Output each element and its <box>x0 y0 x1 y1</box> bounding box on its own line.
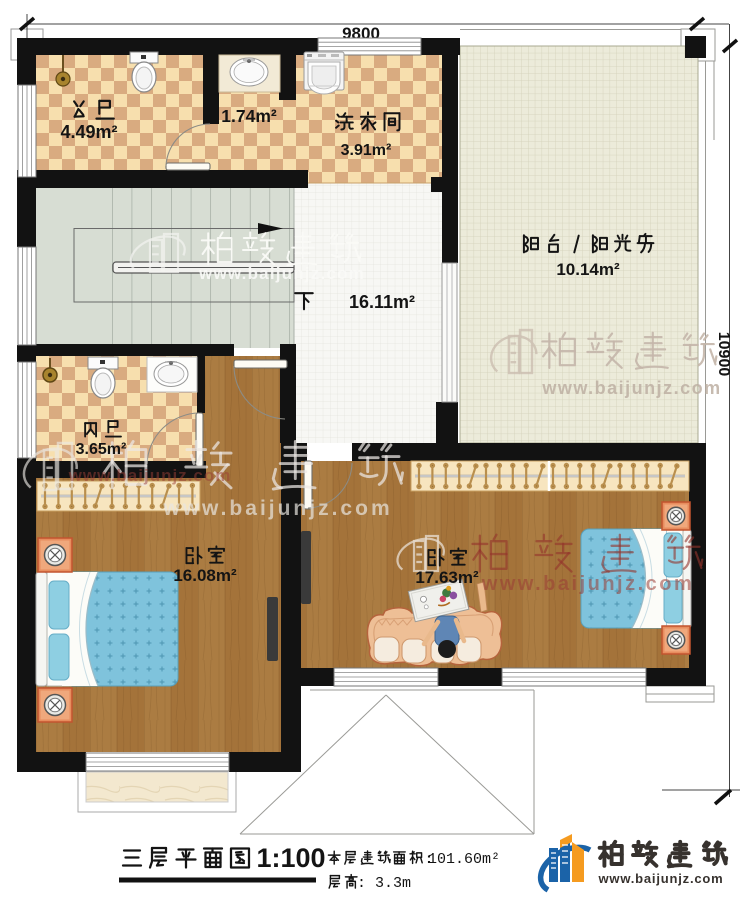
svg-text:16.11m²: 16.11m² <box>349 292 415 312</box>
svg-text:www.baijunjz.com: www.baijunjz.com <box>68 466 232 485</box>
svg-text:17.63m²: 17.63m² <box>415 568 479 587</box>
svg-text:www.baijunjz.com: www.baijunjz.com <box>481 573 695 595</box>
svg-text:1.74m²: 1.74m² <box>221 106 277 126</box>
svg-text:3.91m²: 3.91m² <box>341 142 392 159</box>
svg-text:16.08m²: 16.08m² <box>173 566 237 585</box>
svg-text:: 3.3m: : 3.3m <box>357 875 411 892</box>
svg-text:www.baijunjz.com: www.baijunjz.com <box>162 497 392 520</box>
svg-text:1:100: 1:100 <box>256 843 325 873</box>
svg-text:10900: 10900 <box>715 332 732 377</box>
svg-text:3.65m²: 3.65m² <box>76 441 127 458</box>
svg-text:www.baijunjz.com: www.baijunjz.com <box>541 378 721 398</box>
svg-text:www.baijunjz.com: www.baijunjz.com <box>598 871 724 886</box>
svg-text:4.49m²: 4.49m² <box>60 122 117 142</box>
svg-text:101.60m²: 101.60m² <box>428 851 500 868</box>
svg-text:www.baijunjz.com: www.baijunjz.com <box>198 264 365 283</box>
svg-text:10.14m²: 10.14m² <box>556 260 620 279</box>
